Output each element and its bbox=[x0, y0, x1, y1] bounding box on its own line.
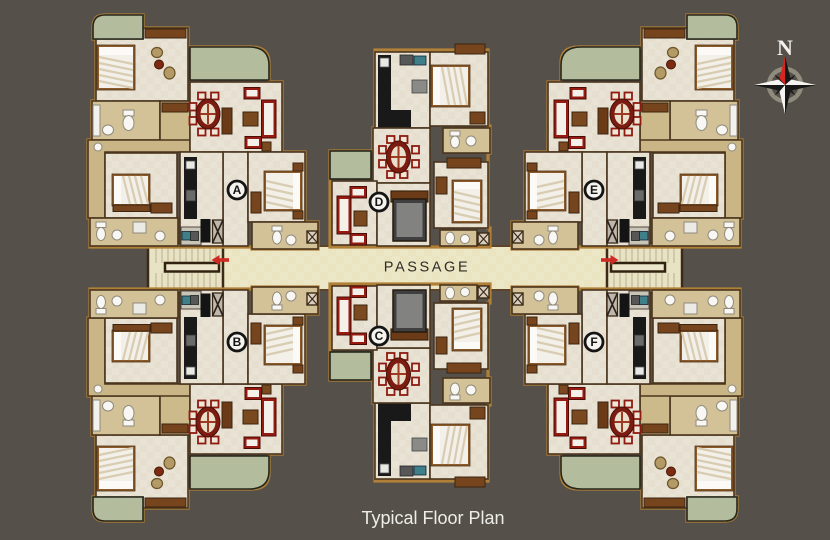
svg-text:Typical Floor Plan: Typical Floor Plan bbox=[361, 508, 504, 528]
svg-text:E: E bbox=[590, 183, 598, 197]
svg-text:F: F bbox=[590, 335, 597, 349]
svg-text:PASSAGE: PASSAGE bbox=[384, 260, 470, 276]
svg-text:A: A bbox=[233, 183, 242, 197]
svg-text:C: C bbox=[375, 329, 384, 343]
svg-text:D: D bbox=[375, 195, 384, 209]
svg-text:B: B bbox=[233, 335, 242, 349]
